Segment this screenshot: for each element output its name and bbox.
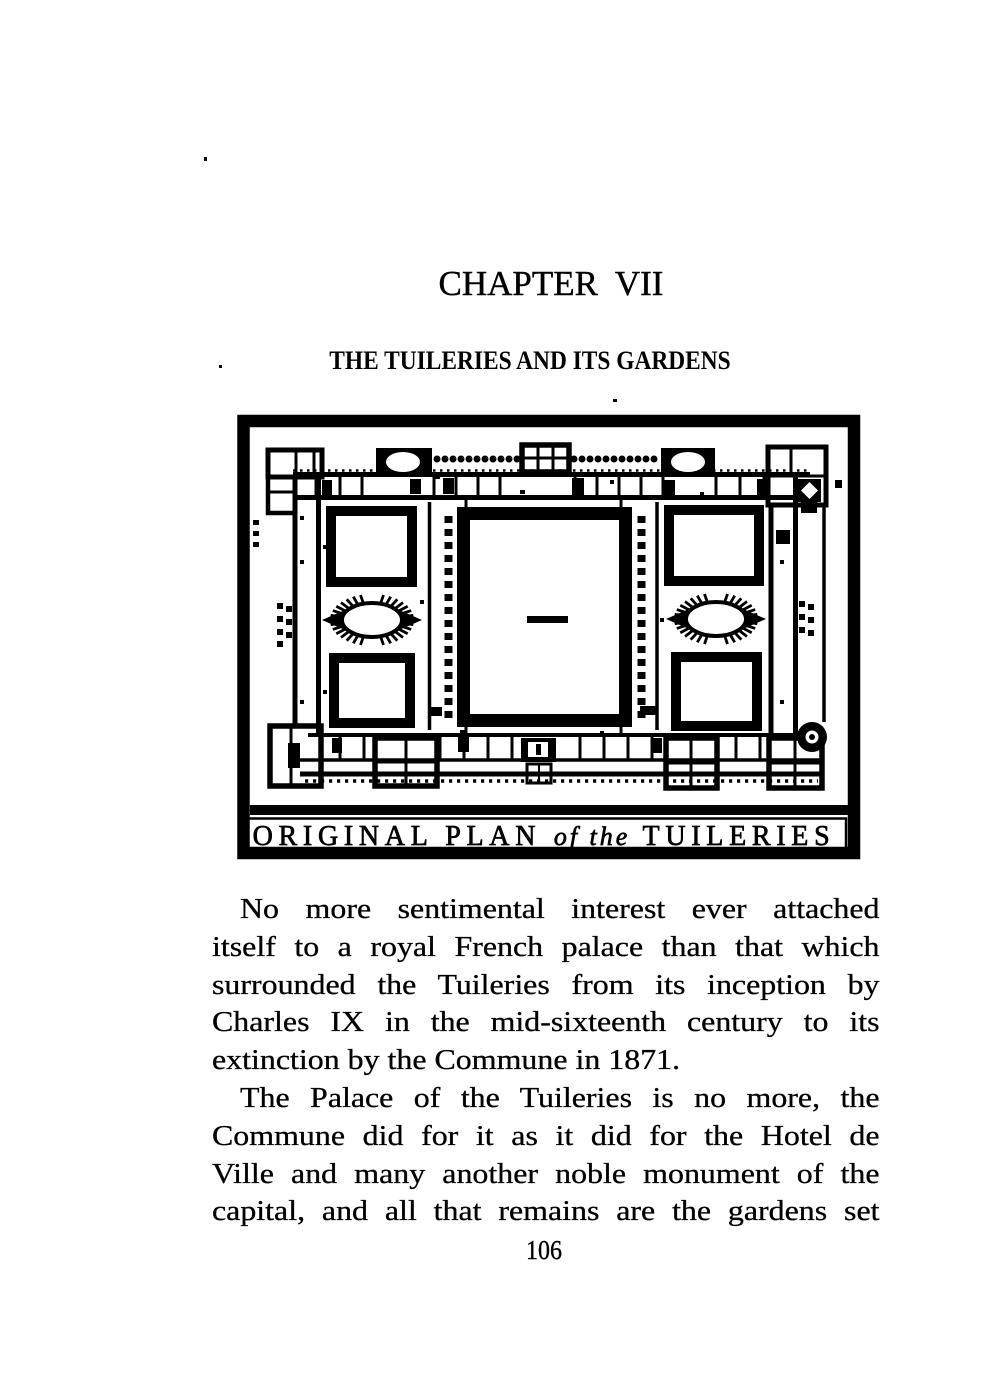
svg-text:ORIGINAL PLAN of the TUILERIES: ORIGINAL PLAN of the TUILERIES [253, 821, 836, 852]
